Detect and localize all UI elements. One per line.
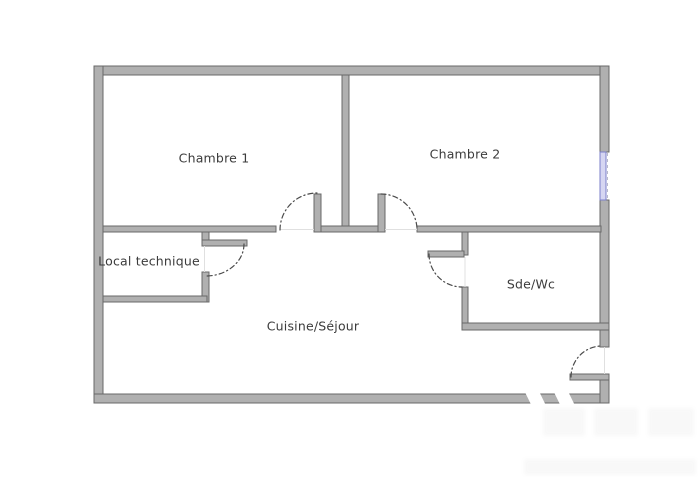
door-arc-entrance [571, 346, 602, 377]
door-leaf-local-technique [202, 240, 247, 246]
door-leaf-chambre-1 [314, 194, 321, 232]
floorplan-drawing [0, 0, 698, 477]
wall-mid-left [103, 226, 276, 232]
door-leaf-sdewc [428, 251, 464, 257]
outer-walls [94, 66, 609, 403]
wall-sdewc-bottom [462, 323, 609, 330]
interior-walls [103, 75, 609, 380]
wall-between-bedrooms [342, 75, 349, 232]
room-label-local-technique: Local technique [98, 254, 200, 269]
wall-top [94, 66, 609, 75]
door-arc-chambre-1 [280, 193, 317, 230]
door-leaf-entrance [570, 374, 609, 380]
door-thresholds [205, 230, 605, 375]
door-arc-chambre-2 [381, 194, 417, 230]
wall-local-technique-bottom [103, 296, 207, 302]
window-glass [600, 152, 606, 200]
wall-right-upper [600, 66, 609, 152]
room-label-cuisine-sejour: Cuisine/Séjour [267, 319, 360, 334]
watermark-block [594, 408, 638, 436]
wall-left [94, 66, 103, 403]
wall-sdewc-left-lower [462, 287, 468, 323]
watermark-block [524, 459, 696, 475]
door-arc-sdewc [429, 254, 462, 287]
window [600, 152, 608, 200]
watermark-block [543, 408, 585, 436]
door-leaf-chambre-2 [378, 194, 385, 232]
room-label-sde-wc: Sde/Wc [507, 277, 555, 292]
watermark-faint-marks [524, 408, 696, 475]
room-label-chambre-2: Chambre 2 [430, 147, 501, 162]
watermark-block [648, 408, 694, 436]
door-arc-local-technique [206, 244, 244, 276]
floorplan: Chambre 1 Chambre 2 Local technique Sde/… [0, 0, 698, 477]
room-label-chambre-1: Chambre 1 [179, 151, 250, 166]
wall-mid-center [314, 226, 385, 232]
wall-mid-right [417, 226, 601, 232]
